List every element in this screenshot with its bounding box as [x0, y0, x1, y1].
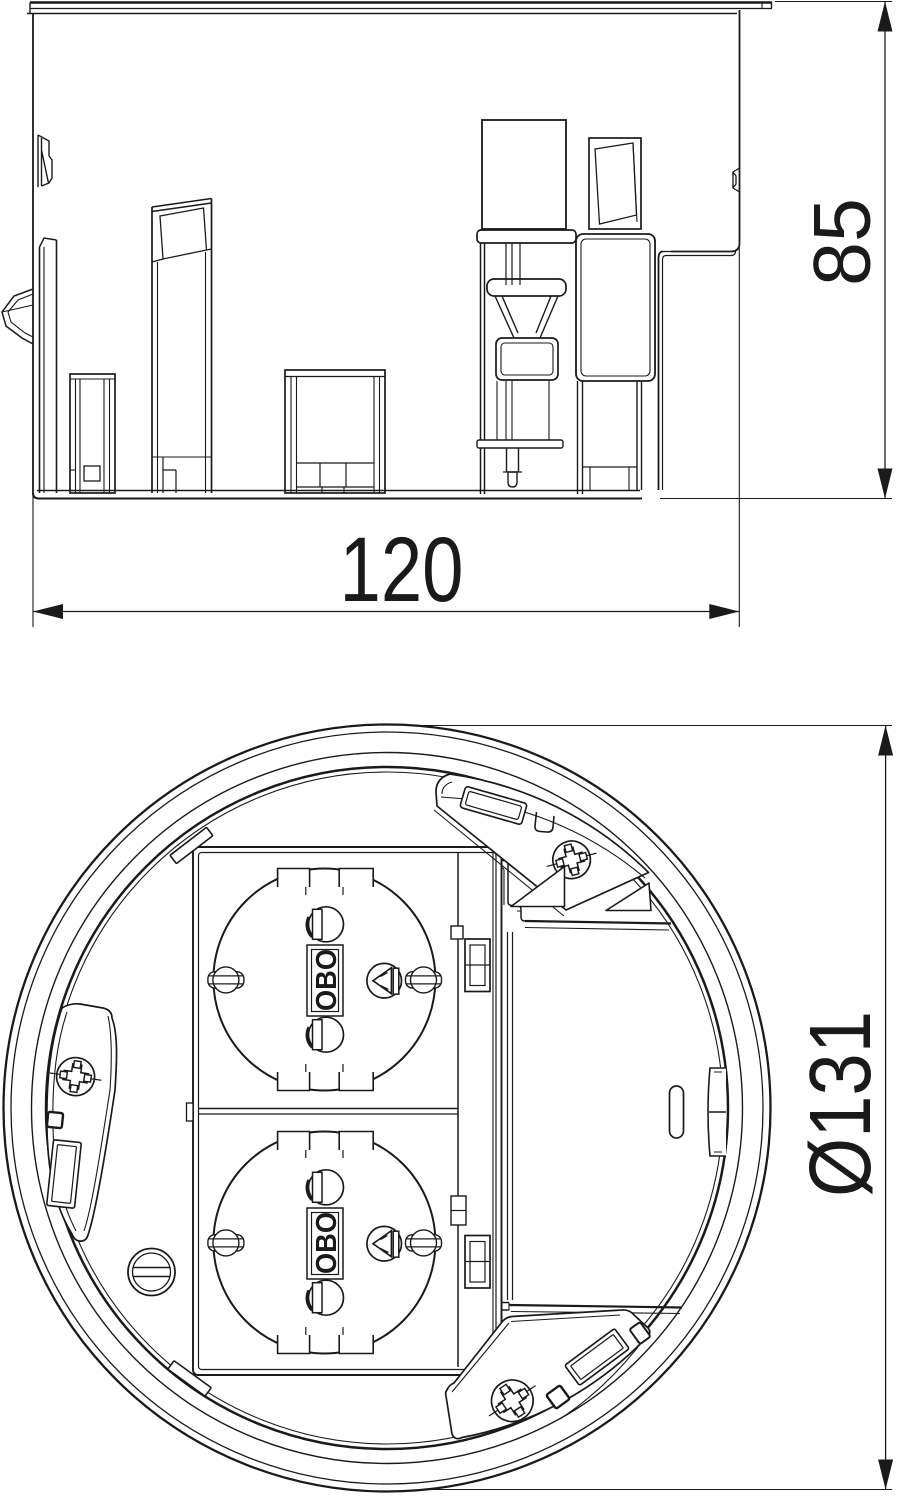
svg-text:120: 120: [340, 519, 464, 621]
svg-text:85: 85: [798, 198, 888, 286]
svg-text:OBO: OBO: [311, 949, 343, 1011]
svg-text:Ø131: Ø131: [792, 1011, 889, 1197]
svg-text:OBO: OBO: [311, 1212, 343, 1274]
